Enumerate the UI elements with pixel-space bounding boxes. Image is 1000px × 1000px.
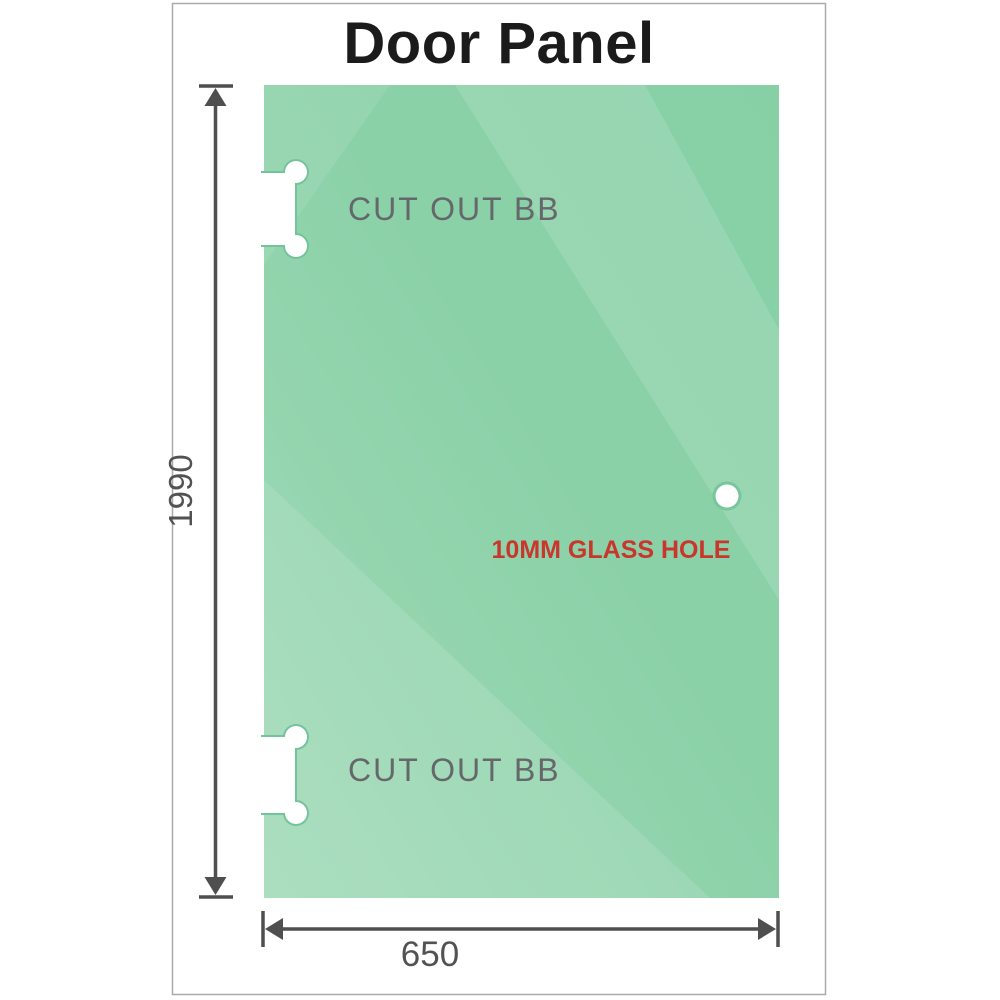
arrow-right-icon xyxy=(758,918,776,940)
cutout-bottom-label: CUT OUT BB xyxy=(348,752,561,788)
height-dimension-value: 1990 xyxy=(162,454,199,527)
width-dimension-value: 650 xyxy=(401,935,459,974)
arrow-left-icon xyxy=(265,918,283,940)
height-dimension xyxy=(199,86,233,897)
glass-hole-label: 10MM GLASS HOLE xyxy=(492,536,731,564)
width-dimension xyxy=(263,911,778,947)
glass-hole xyxy=(713,482,742,511)
door-panel-diagram: CUT OUT BB CUT OUT BB 10MM GLASS HOLE 19… xyxy=(0,0,1000,1000)
cutout-top-label: CUT OUT BB xyxy=(348,191,561,227)
arrow-up-icon xyxy=(205,88,227,106)
arrow-down-icon xyxy=(205,877,227,895)
drawing-canvas: Door Panel xyxy=(0,0,1000,1000)
